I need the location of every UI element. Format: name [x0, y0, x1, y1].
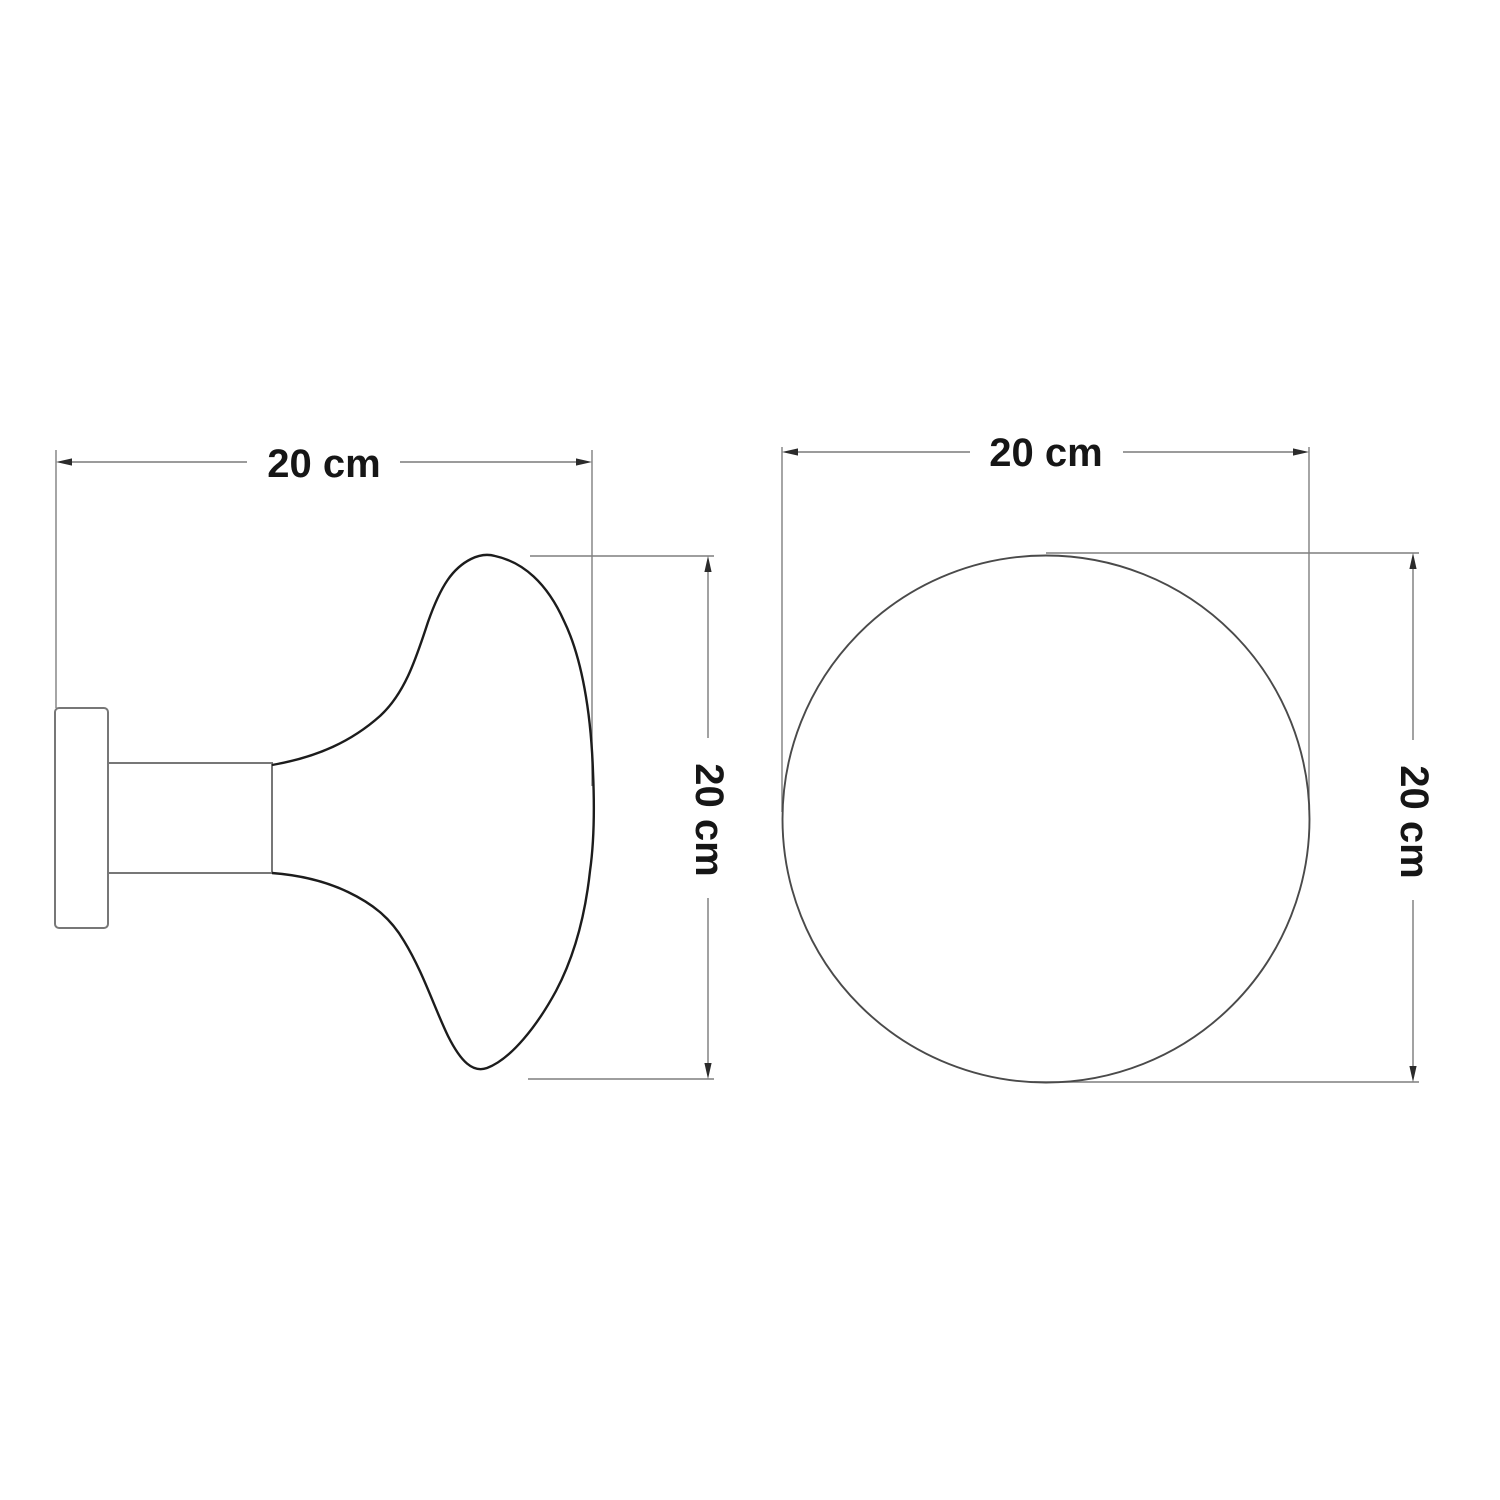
arrowhead-down-icon [704, 1063, 711, 1079]
arrowhead-up-icon [704, 556, 711, 572]
dimension-label-rotated: 20 cm [687, 763, 731, 876]
wall-plate [55, 708, 108, 928]
arrowhead-up-icon [1409, 553, 1416, 569]
arrowhead-down-icon [1409, 1066, 1416, 1082]
arrowhead-right-icon [576, 458, 592, 465]
stem [108, 763, 272, 873]
knob-face-circle [783, 556, 1310, 1083]
arrowhead-left-icon [782, 448, 798, 455]
dimension-label-rotated: 20 cm [1392, 765, 1436, 878]
dimension-label: 20 cm [267, 442, 380, 486]
side-width-dimension: 20 cm [56, 442, 592, 786]
knob-side-profile [55, 555, 594, 1069]
front-width-dimension: 20 cm [782, 431, 1309, 812]
front-view: 20 cm 20 cm [782, 431, 1436, 1083]
technical-drawing-page: 20 cm 20 cm [0, 0, 1500, 1500]
arrowhead-right-icon [1293, 448, 1309, 455]
side-height-dimension: 20 cm [528, 556, 731, 1079]
knob-dimension-drawing: 20 cm 20 cm [0, 0, 1500, 1500]
dimension-label: 20 cm [989, 431, 1102, 475]
arrowhead-left-icon [56, 458, 72, 465]
side-view: 20 cm 20 cm [55, 442, 731, 1079]
knob-outline [272, 555, 594, 1069]
